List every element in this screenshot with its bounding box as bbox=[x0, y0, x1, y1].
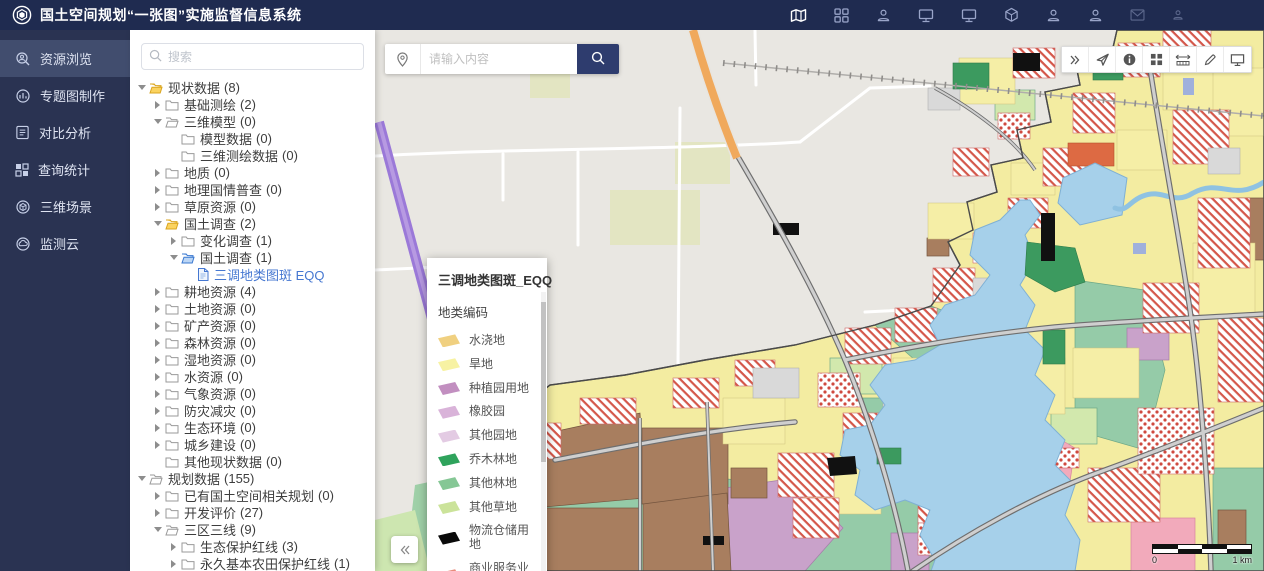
folder-icon bbox=[181, 133, 195, 145]
tree-node[interactable]: 防灾减灾(0) bbox=[130, 402, 375, 419]
tree-expand-arrow[interactable] bbox=[152, 492, 163, 500]
legend-title: 三调地类图斑_EQQ bbox=[438, 270, 537, 289]
folder-icon bbox=[165, 184, 179, 196]
folder-icon bbox=[165, 286, 179, 298]
sidebar-item-3[interactable]: 对比分析 bbox=[0, 114, 130, 151]
tree-node[interactable]: 地理国情普查(0) bbox=[130, 181, 375, 198]
search-icon bbox=[149, 49, 162, 67]
tool-locate-button[interactable] bbox=[1089, 47, 1116, 72]
tree-node-count: (1) bbox=[256, 233, 272, 248]
folder-icon bbox=[165, 422, 179, 434]
tree-expand-arrow[interactable] bbox=[152, 356, 163, 364]
tree-node[interactable]: 现状数据(8) bbox=[130, 79, 375, 96]
map-scalebar: 0 1 km bbox=[1152, 544, 1252, 565]
legend-label: 物流仓储用地 bbox=[469, 524, 537, 552]
user-badge-icon[interactable] bbox=[1088, 8, 1103, 23]
folder-icon bbox=[181, 252, 195, 264]
folder-icon bbox=[181, 150, 195, 162]
stats-icon bbox=[15, 163, 29, 177]
legend-field-label: 地类编码 bbox=[438, 302, 537, 321]
tree-node[interactable]: 三维模型(0) bbox=[130, 113, 375, 130]
legend-panel: 三调地类图斑_EQQ 地类编码 水浇地旱地种植园用地橡胶园其他园地乔木林地其他林… bbox=[427, 258, 547, 571]
legend-swatch bbox=[438, 477, 460, 490]
tree-node-count: (0) bbox=[266, 454, 282, 469]
app-logo-icon bbox=[12, 5, 32, 25]
tree-node[interactable]: 模型数据(0) bbox=[130, 130, 375, 147]
tree-node[interactable]: 地质(0) bbox=[130, 164, 375, 181]
legend-swatch bbox=[438, 382, 460, 395]
main-layout: 资源浏览专题图制作对比分析查询统计三维场景监测云 现状数据(8)基础测绘(2)三… bbox=[0, 30, 1264, 571]
tree-node[interactable]: 三调地类图斑 EQQ bbox=[130, 266, 375, 283]
tree-expand-arrow[interactable] bbox=[152, 322, 163, 330]
catalog-search-input[interactable] bbox=[141, 43, 364, 70]
tree-node-count: (1) bbox=[256, 250, 272, 265]
legend-swatch bbox=[438, 334, 460, 347]
tree-node-count: (1) bbox=[334, 556, 350, 571]
cloud-icon bbox=[15, 236, 31, 252]
tree-expand-arrow[interactable] bbox=[168, 255, 179, 260]
user-icon[interactable] bbox=[1172, 9, 1184, 21]
sidebar-item-label: 查询统计 bbox=[38, 160, 90, 179]
legend-swatch bbox=[438, 532, 460, 545]
tree-expand-arrow[interactable] bbox=[152, 186, 163, 194]
legend-swatch bbox=[438, 406, 460, 419]
legend-item: 其他林地 bbox=[438, 477, 537, 491]
tree-expand-arrow[interactable] bbox=[152, 169, 163, 177]
folder-icon bbox=[165, 337, 179, 349]
map-viewport[interactable]: 三调地类图斑_EQQ 地类编码 水浇地旱地种植园用地橡胶园其他园地乔木林地其他林… bbox=[375, 30, 1264, 571]
legend-label: 橡胶园 bbox=[469, 405, 505, 419]
scalebar-end: 1 km bbox=[1232, 555, 1252, 565]
legend-label: 旱地 bbox=[469, 358, 493, 372]
tree-expand-arrow[interactable] bbox=[152, 101, 163, 109]
scalebar-start: 0 bbox=[1152, 555, 1157, 565]
legend-label: 其他园地 bbox=[469, 429, 517, 443]
map-icon[interactable] bbox=[790, 8, 807, 23]
legend-item: 水浇地 bbox=[438, 334, 537, 348]
tool-draw-button[interactable] bbox=[1197, 47, 1224, 72]
tree-expand-arrow[interactable] bbox=[168, 543, 179, 551]
folder-icon bbox=[165, 439, 179, 451]
tree-node-count: (0) bbox=[240, 403, 256, 418]
folder-icon bbox=[181, 235, 195, 247]
tree-node[interactable]: 草原资源(0) bbox=[130, 198, 375, 215]
map-toolbar bbox=[1061, 46, 1252, 73]
search-icon bbox=[591, 51, 605, 68]
folder-icon bbox=[165, 405, 179, 417]
browse-icon bbox=[15, 51, 31, 67]
tree-node-count: (155) bbox=[224, 471, 254, 486]
folder-icon bbox=[165, 388, 179, 400]
tree-expand-arrow[interactable] bbox=[152, 339, 163, 347]
folder-icon bbox=[165, 99, 179, 111]
tree-node[interactable]: 永久基本农田保护红线(1) bbox=[130, 555, 375, 571]
tree-expand-arrow[interactable] bbox=[152, 305, 163, 313]
tree-node[interactable]: 开发评价(27) bbox=[130, 504, 375, 521]
tree-node[interactable]: 耕地资源(4) bbox=[130, 283, 375, 300]
header-icon-bar bbox=[790, 7, 1184, 23]
legend-swatch bbox=[438, 501, 460, 514]
thematic-icon bbox=[15, 88, 31, 104]
legend-item: 旱地 bbox=[438, 358, 537, 372]
page-title: 国土空间规划“一张图”实施监督信息系统 bbox=[40, 5, 302, 25]
tree-node[interactable]: 生态保护红线(3) bbox=[130, 538, 375, 555]
tree-expand-arrow[interactable] bbox=[152, 221, 163, 226]
mail-icon[interactable] bbox=[1130, 9, 1145, 21]
map-search-bar bbox=[385, 44, 619, 74]
tree-node-count: (0) bbox=[240, 335, 256, 350]
legend-item: 种植园用地 bbox=[438, 382, 537, 396]
legend-label: 乔木林地 bbox=[469, 453, 517, 467]
tree-node-count: (0) bbox=[240, 301, 256, 316]
legend-label: 种植园用地 bbox=[469, 382, 529, 396]
legend-item: 其他园地 bbox=[438, 429, 537, 443]
tree-expand-arrow[interactable] bbox=[152, 407, 163, 415]
folder-icon bbox=[165, 201, 179, 213]
tool-grid-button[interactable] bbox=[1143, 47, 1170, 72]
sidebar-item-label: 三维场景 bbox=[40, 197, 92, 216]
tree-node-count: (3) bbox=[282, 539, 298, 554]
tree-expand-arrow[interactable] bbox=[168, 560, 179, 568]
tree-expand-arrow[interactable] bbox=[152, 288, 163, 296]
location-pin-icon[interactable] bbox=[385, 44, 421, 74]
legend-label: 其他草地 bbox=[469, 501, 517, 515]
sidebar-item-label: 对比分析 bbox=[39, 123, 91, 142]
tree-node[interactable]: 气象资源(0) bbox=[130, 385, 375, 402]
folder-icon bbox=[165, 218, 179, 230]
tree-expand-arrow[interactable] bbox=[152, 390, 163, 398]
tree-node[interactable]: 国土调查(1) bbox=[130, 249, 375, 266]
tree-node[interactable]: 土地资源(0) bbox=[130, 300, 375, 317]
legend-swatch bbox=[438, 358, 460, 371]
tree-expand-arrow[interactable] bbox=[136, 85, 147, 90]
compare-icon bbox=[15, 125, 30, 140]
sidebar-item-label: 资源浏览 bbox=[40, 49, 92, 68]
tree-node-count: (0) bbox=[240, 114, 256, 129]
folder-icon bbox=[181, 541, 195, 553]
folder-icon bbox=[165, 507, 179, 519]
legend-list: 水浇地旱地种植园用地橡胶园其他园地乔木林地其他林地其他草地物流仓储用地商业服务业… bbox=[438, 334, 537, 571]
tree-node-count: (0) bbox=[240, 386, 256, 401]
legend-item: 物流仓储用地 bbox=[438, 524, 537, 552]
tree-node-count: (0) bbox=[256, 131, 272, 146]
tree-node[interactable]: 城乡建设(0) bbox=[130, 436, 375, 453]
nav-sidebar: 资源浏览专题图制作对比分析查询统计三维场景监测云 bbox=[0, 30, 130, 571]
layer-tree: 现状数据(8)基础测绘(2)三维模型(0)模型数据(0)三维测绘数据(0)地质(… bbox=[130, 79, 375, 571]
legend-item: 商业服务业设施用地 bbox=[438, 562, 537, 571]
tree-node-count: (4) bbox=[240, 284, 256, 299]
tree-node-count: (0) bbox=[266, 182, 282, 197]
tree-node-count: (27) bbox=[240, 505, 263, 520]
sidebar-item-4[interactable]: 查询统计 bbox=[0, 151, 130, 188]
monitor-icon[interactable] bbox=[918, 8, 934, 23]
tree-expand-arrow[interactable] bbox=[152, 203, 163, 211]
tree-expand-arrow[interactable] bbox=[152, 119, 163, 124]
sidebar-item-label: 监测云 bbox=[40, 234, 79, 253]
tree-node-count: (0) bbox=[240, 437, 256, 452]
tree-node[interactable]: 国土调查(2) bbox=[130, 215, 375, 232]
tree-node[interactable]: 三区三线(9) bbox=[130, 521, 375, 538]
user-badge-icon[interactable] bbox=[876, 8, 891, 23]
sidebar-item-2[interactable]: 专题图制作 bbox=[0, 77, 130, 114]
folder-icon bbox=[181, 558, 195, 570]
folder-icon bbox=[149, 473, 163, 485]
layer-catalog-panel: 现状数据(8)基础测绘(2)三维模型(0)模型数据(0)三维测绘数据(0)地质(… bbox=[130, 30, 375, 571]
tree-node[interactable]: 变化调查(1) bbox=[130, 232, 375, 249]
tool-collapse-button[interactable] bbox=[1062, 47, 1089, 72]
sidebar-item-6[interactable]: 监测云 bbox=[0, 225, 130, 262]
monitor-icon[interactable] bbox=[961, 8, 977, 23]
tree-node-label: 三维测绘数据 bbox=[200, 146, 278, 165]
tree-expand-arrow[interactable] bbox=[152, 441, 163, 449]
sidebar-item-1[interactable]: 资源浏览 bbox=[0, 40, 130, 77]
tree-node-count: (0) bbox=[282, 148, 298, 163]
folder-icon bbox=[165, 524, 179, 536]
tree-node-count: (0) bbox=[240, 199, 256, 214]
tree-node[interactable]: 生态环境(0) bbox=[130, 419, 375, 436]
folder-icon bbox=[165, 320, 179, 332]
folder-icon bbox=[149, 82, 163, 94]
folder-icon bbox=[165, 490, 179, 502]
map-search-button[interactable] bbox=[577, 44, 619, 74]
legend-item: 其他草地 bbox=[438, 501, 537, 515]
tree-node-count: (8) bbox=[224, 80, 240, 95]
apps-icon[interactable] bbox=[834, 8, 849, 23]
cube-icon[interactable] bbox=[1004, 7, 1019, 23]
user-badge-icon[interactable] bbox=[1046, 8, 1061, 23]
tree-node-count: (0) bbox=[227, 369, 243, 384]
tool-info-button[interactable] bbox=[1116, 47, 1143, 72]
tool-measure-button[interactable] bbox=[1170, 47, 1197, 72]
legend-item: 乔木林地 bbox=[438, 453, 537, 467]
legend-item: 橡胶园 bbox=[438, 405, 537, 419]
folder-icon bbox=[165, 167, 179, 179]
tree-node-count: (0) bbox=[240, 318, 256, 333]
sidebar-item-5[interactable]: 三维场景 bbox=[0, 188, 130, 225]
app-header: 国土空间规划“一张图”实施监督信息系统 bbox=[0, 0, 1264, 30]
legend-swatch bbox=[438, 453, 460, 466]
tree-node-count: (2) bbox=[240, 97, 256, 112]
tree-node-count: (0) bbox=[240, 352, 256, 367]
tree-node[interactable]: 矿产资源(0) bbox=[130, 317, 375, 334]
tree-node[interactable]: 其他现状数据(0) bbox=[130, 453, 375, 470]
sidebar-item-label: 专题图制作 bbox=[40, 86, 105, 105]
tree-node-count: (9) bbox=[240, 522, 256, 537]
tree-node-count: (0) bbox=[214, 165, 230, 180]
legend-swatch bbox=[438, 430, 460, 443]
tree-node[interactable]: 水资源(0) bbox=[130, 368, 375, 385]
folder-icon bbox=[165, 303, 179, 315]
tree-node[interactable]: 湿地资源(0) bbox=[130, 351, 375, 368]
folder-icon bbox=[165, 354, 179, 366]
legend-label: 商业服务业设施用地 bbox=[469, 562, 537, 571]
scene3d-icon bbox=[15, 199, 31, 215]
legend-label: 其他林地 bbox=[469, 477, 517, 491]
folder-icon bbox=[165, 456, 179, 468]
tree-node-count: (0) bbox=[318, 488, 334, 503]
tree-expand-arrow[interactable] bbox=[136, 476, 147, 481]
tree-expand-arrow[interactable] bbox=[152, 509, 163, 517]
tree-node[interactable]: 已有国土空间相关规划(0) bbox=[130, 487, 375, 504]
tree-node-count: (0) bbox=[240, 420, 256, 435]
tree-expand-arrow[interactable] bbox=[168, 237, 179, 245]
folder-icon bbox=[165, 371, 179, 383]
tree-expand-arrow[interactable] bbox=[152, 527, 163, 532]
map-search-input[interactable] bbox=[421, 44, 577, 74]
tool-screen-button[interactable] bbox=[1224, 47, 1251, 72]
tree-expand-arrow[interactable] bbox=[152, 424, 163, 432]
folder-icon bbox=[165, 116, 179, 128]
tree-node[interactable]: 规划数据(155) bbox=[130, 470, 375, 487]
legend-scrollbar[interactable] bbox=[541, 292, 546, 571]
catalog-search bbox=[141, 43, 364, 70]
legend-label: 水浇地 bbox=[469, 334, 505, 348]
tree-node[interactable]: 森林资源(0) bbox=[130, 334, 375, 351]
collapse-panel-button[interactable] bbox=[391, 536, 418, 563]
tree-node[interactable]: 三维测绘数据(0) bbox=[130, 147, 375, 164]
tree-node-label: 永久基本农田保护红线 bbox=[200, 554, 330, 571]
tree-node-count: (2) bbox=[240, 216, 256, 231]
tree-node[interactable]: 基础测绘(2) bbox=[130, 96, 375, 113]
file-icon bbox=[197, 268, 209, 281]
tree-expand-arrow[interactable] bbox=[152, 373, 163, 381]
